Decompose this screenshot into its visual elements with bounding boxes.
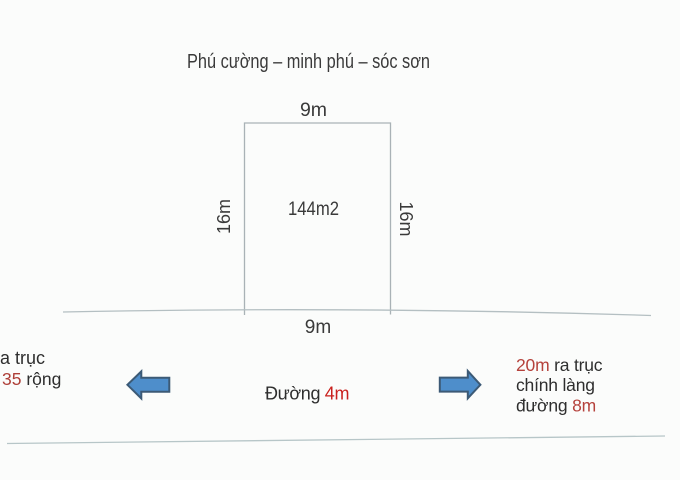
svg-text:9m: 9m — [300, 99, 327, 121]
svg-text:Phú cường – minh phú – sóc sơn: Phú cường – minh phú – sóc sơn — [187, 50, 430, 73]
svg-text:35 rộng: 35 rộng — [2, 369, 61, 389]
svg-text:144m2: 144m2 — [288, 199, 339, 220]
svg-text:9m: 9m — [305, 317, 331, 338]
svg-text:20m ra trục: 20m ra trục — [516, 355, 603, 375]
svg-text:16m: 16m — [396, 201, 416, 236]
svg-text:đường 8m: đường 8m — [516, 396, 596, 416]
svg-text:Đường 4m: Đường 4m — [265, 384, 349, 404]
svg-text:chính làng: chính làng — [516, 375, 595, 395]
svg-text:ra trục: ra trục — [0, 348, 45, 368]
svg-text:16m: 16m — [214, 199, 234, 234]
